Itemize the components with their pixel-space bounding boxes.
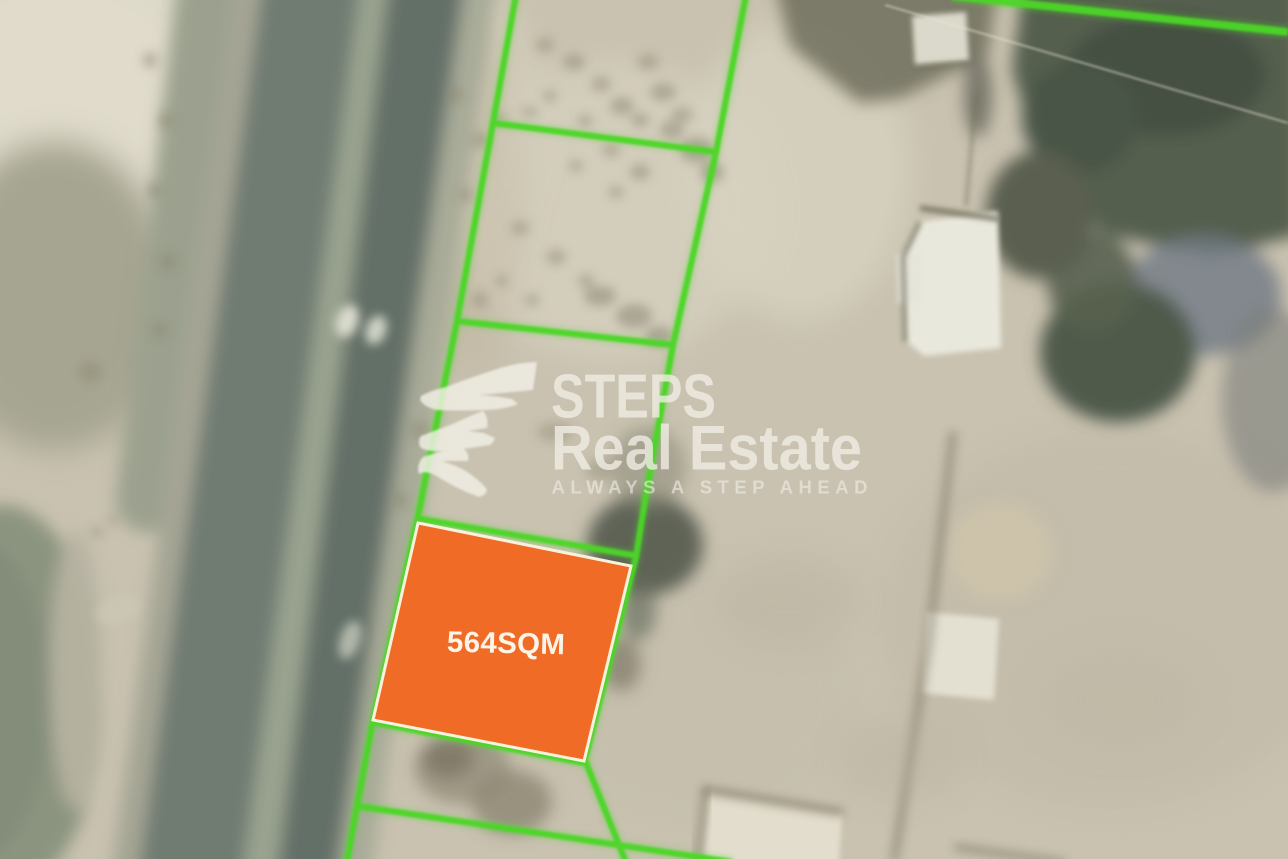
svg-text:Real Estate: Real Estate	[551, 414, 862, 484]
svg-text:564SQM: 564SQM	[447, 626, 566, 662]
svg-text:ALWAYS A STEP AHEAD: ALWAYS A STEP AHEAD	[552, 477, 874, 498]
